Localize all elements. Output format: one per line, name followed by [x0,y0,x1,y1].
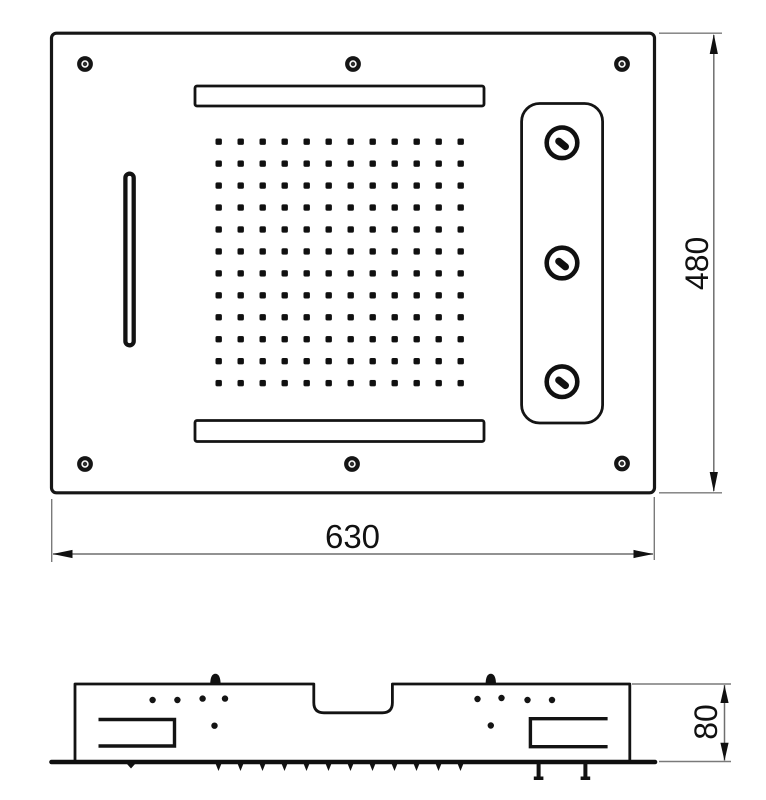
svg-text:630: 630 [325,518,380,555]
svg-text:480: 480 [679,237,715,290]
svg-text:80: 80 [688,704,724,740]
